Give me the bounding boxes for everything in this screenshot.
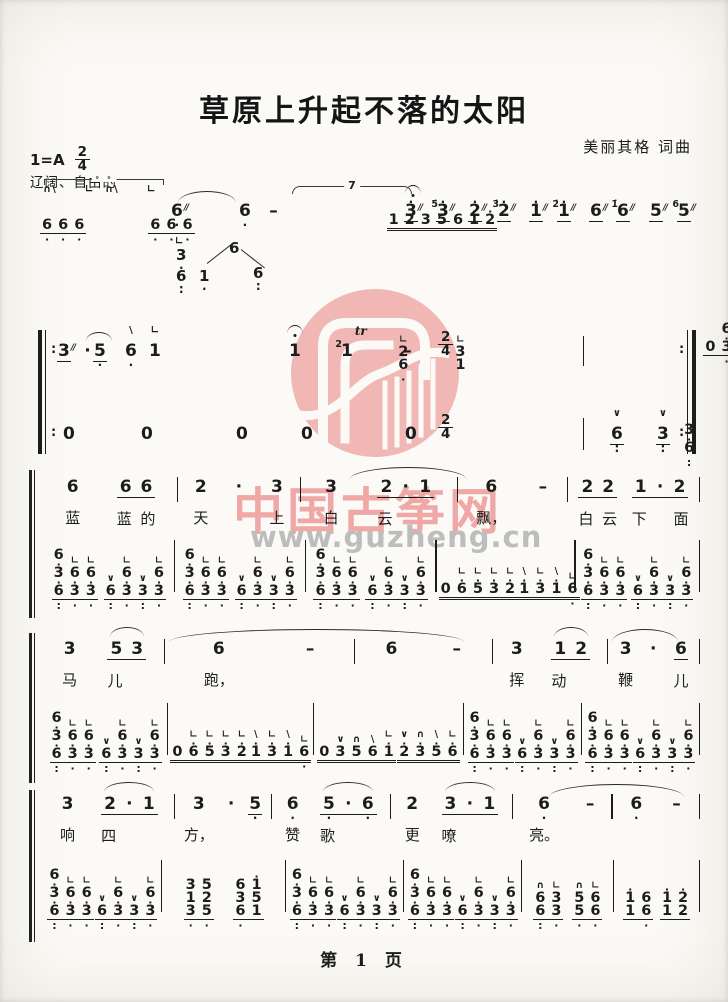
chord-column: 525· [202, 879, 212, 918]
note-token: 6蓝 [65, 477, 80, 528]
repeat-dots: : [51, 427, 56, 439]
beam-group: ·1166· [623, 887, 653, 920]
note-token: 3// [57, 341, 75, 362]
octave-dot-below: · [71, 764, 75, 773]
octave-dot-above: · [534, 199, 539, 205]
chord-column: ∟6·3· [65, 887, 75, 918]
beam-group: 2·1四 [101, 794, 158, 846]
chord-note: 1 [519, 583, 529, 596]
note-token: 5· [322, 794, 336, 814]
octave-dot-below: : [586, 601, 590, 610]
note-value: 6: [610, 424, 624, 445]
note-token: 3· [175, 247, 187, 264]
barline [699, 639, 700, 664]
octave-dot-below: · [593, 921, 597, 930]
beam-group: ∨6:∟6·3·∨3:∟6·3· [337, 887, 399, 920]
lyric-syllable: 面 [673, 508, 688, 529]
octave-dot-below: : [104, 764, 108, 773]
note-token: 2·// [468, 201, 486, 222]
note-token: 6 [674, 639, 688, 660]
octave-dot-below: · [554, 921, 558, 930]
note-value: 2 [194, 477, 208, 497]
note-token: 0 [62, 424, 76, 444]
chord-column: ∨3: [269, 585, 279, 598]
chord-column: ∟6·3· [384, 567, 394, 598]
measure: 6·3·6:∟6·3·∟6·3·∨6:∟6·3·∨3:∟6·3· [464, 712, 581, 763]
chord-column: ∟6·3· [442, 887, 452, 918]
chord-column: ∟6·3· [506, 887, 516, 918]
octave-dot-below: · [153, 235, 157, 244]
vocal-line: 6蓝66蓝的2天·3上3白2·1云6飘，–22白云1·2下面 [44, 477, 700, 529]
lyric-syllable: 儿 [107, 670, 122, 691]
note-value: 3 [619, 639, 633, 659]
lyric-syllable: 蓝 [117, 508, 132, 529]
note-token: – [402, 341, 413, 361]
chord-note: 3 [65, 905, 75, 918]
octave-dot-below: · [120, 764, 124, 773]
note-token: 1·// [529, 201, 547, 222]
measure: 6·3·6:∟6·3·∟6·3·∨6:∟6·3·∨3:∟6·3· [582, 712, 699, 763]
lyric-syllable: 跑， [204, 669, 234, 690]
measure: 6·3·6:∟6·3·∟6·3·∨6:∟6·3·∨3:∟6·3· [306, 549, 436, 600]
ornament: ∟ [552, 881, 560, 891]
note-token: · [226, 794, 237, 814]
measure: 6·3·6:∟6·3·∟6·3·∨6:∟6·3·∨3:∟6·3· [576, 549, 699, 600]
note-token: 3 [324, 477, 338, 497]
chord-column: ∨6: [367, 585, 377, 598]
barline [699, 794, 700, 819]
chord-note: 2 [505, 583, 515, 596]
ornament: ∨ [270, 574, 278, 584]
note-value: · [124, 794, 135, 814]
lyric-syllable: 嘹 [442, 825, 457, 846]
chord-column: ∟6·3· [604, 730, 614, 761]
lyric-syllable: 挥 [509, 669, 524, 690]
beam-group: 6·6·6· [148, 219, 194, 234]
chord-note: 6 [235, 905, 245, 918]
chord-note: 1 [455, 359, 465, 372]
note-token: · [648, 639, 659, 659]
note-token: 3 [444, 794, 458, 814]
note-value: ∟ [146, 184, 157, 195]
chord-column: 6·3·6: [583, 549, 593, 598]
ornament: ∨ [139, 574, 147, 584]
ornament: ∟ [652, 719, 660, 729]
chord-note: 6 [150, 219, 160, 232]
lyric-row: 蓝的 [117, 498, 156, 529]
chord-note: 3 [221, 746, 231, 759]
phrase-arc [612, 629, 678, 642]
ornament: ∩ [575, 881, 583, 891]
chord-column: ∟6·3· [565, 730, 575, 761]
chord-column: ∟·6 [188, 741, 198, 759]
chord-column: ∩5 [351, 746, 361, 759]
note-token: 6· [238, 201, 252, 221]
ornament: ∨ [400, 730, 408, 740]
chord-column: 6·3·6: [52, 712, 62, 761]
beam-group: 6·3·6:∟6·3·∟6·3· [581, 549, 627, 600]
note-token: · [343, 794, 354, 814]
octave-dot-below: · [391, 921, 395, 930]
ornament: ∟ [536, 567, 544, 577]
note-value: ∟ [84, 184, 95, 195]
sheet-page: 中国古筝网 www.guzheng.cn 草原上升起不落的太阳 美丽其格 词曲 … [0, 0, 728, 1002]
chord-note: 3 [649, 585, 659, 598]
tremolo-slashes: // [511, 204, 515, 212]
chord-column: ∟·6 [447, 741, 457, 759]
note-token: 6·亮。 [529, 794, 559, 845]
chord-note: 3 [502, 748, 512, 761]
ornament: ∨ [459, 894, 467, 904]
note-token: 0 [404, 424, 418, 444]
lyric-row: 嘹 [442, 815, 499, 846]
chord-column: 0 [441, 583, 451, 596]
system-bracket [29, 790, 32, 942]
note-value: 2· [468, 201, 482, 222]
chord-column: ·22 [678, 887, 688, 918]
octave-dot-below: · [602, 601, 606, 610]
note-value: 3 [444, 794, 458, 814]
measure: 6·3·6:∟6·3·∟6·3·∨6:∟6·3·∨3:∟6·3· [175, 549, 305, 600]
beam-group: ∨6:∟6·3·∨3:∟6·3· [235, 567, 297, 600]
ornament: ∨ [238, 574, 246, 584]
chord-column: ∨3: [138, 585, 148, 598]
chord-note: 3 [533, 748, 543, 761]
barline [699, 703, 700, 755]
chord-note: 6 [367, 585, 377, 598]
bracket-label: ∘ ∘ [92, 173, 117, 182]
note-value: 0 [235, 424, 249, 444]
chord-note: 5 [473, 583, 483, 596]
tremolo-slashes: // [630, 204, 634, 212]
note-token: 5· [248, 794, 262, 815]
note-value: 6 [119, 477, 133, 497]
tremolo-slashes: // [418, 204, 422, 212]
ornament: ∟ [600, 556, 608, 566]
note-value: 1 [553, 639, 567, 659]
note-token: ∩\ [104, 184, 120, 195]
chord-column: ∟66· [590, 892, 600, 918]
octave-dot-below: · [429, 921, 433, 930]
note-token: 5· [93, 341, 107, 362]
note-token: 6· [238, 201, 252, 221]
octave-dot-below: : [636, 601, 640, 610]
lyric-row: 云 [377, 498, 434, 529]
octave-dot-below: · [618, 601, 622, 610]
note-token: 1·// [529, 201, 547, 222]
octave-dot-below: : [239, 601, 243, 610]
note-token: 1 [482, 794, 496, 814]
note-token: · [233, 477, 244, 497]
note-token: 0 [140, 424, 154, 444]
chord-column: 1 [389, 214, 399, 227]
octave-dot-below: · [445, 921, 449, 930]
note-token: · [226, 794, 237, 814]
octave-dot-below: · [290, 815, 295, 822]
octave-dot-below: : [179, 286, 184, 293]
note-token: 6·// [170, 201, 188, 221]
note-value: – [268, 201, 279, 221]
chord-note: 6 [470, 748, 480, 761]
beam-group: 6·3·6:∟6·3·∟6·3· [408, 869, 454, 920]
note-token: 5 [109, 639, 123, 659]
note-token: 0 [300, 424, 314, 444]
score: 6·6·6·6·6·6·∩\∟∩\∟6·//6·–∟3·6:1·66:12356… [0, 0, 728, 1002]
chord-column: ∨6: [457, 905, 467, 918]
octave-dot-below: · [157, 601, 161, 610]
chord-column: 0 [319, 746, 329, 759]
note-value: 5· [248, 794, 262, 815]
slur-arc [554, 627, 588, 637]
note-value: · [82, 341, 93, 361]
chord-note: 2 [237, 746, 247, 759]
octave-dot-below: : [638, 764, 642, 773]
ornament: ∟ [474, 567, 482, 577]
note-token: · [400, 477, 411, 497]
repeat-dots: : [679, 344, 684, 356]
tremolo-slashes: // [571, 204, 575, 212]
ornament: \ [286, 730, 289, 740]
note-token: 3·// [404, 201, 422, 222]
note-token: 3 [619, 639, 633, 659]
tremolo-slashes: // [543, 204, 547, 212]
chord-note: 6 [188, 746, 198, 759]
beam-group: ∩66:∟33· [533, 892, 563, 920]
note-value: 6 [140, 477, 154, 497]
note-value: 5 [109, 639, 123, 659]
beam-group: ∨6:∟6·3·∨3:∟6·3· [99, 730, 161, 763]
ornament: ∟ [487, 719, 495, 729]
octave-dot-below: · [169, 235, 173, 244]
ornament: ∟ [427, 876, 435, 886]
note-value: 6· [629, 794, 643, 814]
chord-column: ∟6·3· [649, 567, 659, 598]
tremolo-slashes: // [691, 204, 695, 212]
measure: 6蓝66蓝的 [44, 477, 177, 529]
note-token: 3 [130, 639, 144, 659]
chord-note: 6 [635, 748, 645, 761]
chord-column: 313· [186, 879, 196, 918]
chord-note: 6 [74, 219, 84, 232]
chord-note: 6 [453, 214, 463, 227]
chord-note: 1 [283, 746, 293, 759]
beam-notes: 2·1 [101, 794, 158, 815]
note-token: 6·\ [124, 341, 138, 361]
ornament: ∨ [373, 894, 381, 904]
chord-column: 6· [42, 219, 52, 232]
chord-note: 3 [442, 905, 452, 918]
chord-column: ∟6·3· [145, 887, 155, 918]
note-value: · [343, 794, 354, 814]
chord-column: ∟6·3· [84, 730, 94, 761]
note-value: – [671, 794, 682, 814]
note-token: 0 [404, 424, 418, 444]
tremolo-slashes: // [603, 204, 607, 212]
beam-notes: 53 [107, 639, 146, 660]
note-token: 2更 [405, 794, 420, 845]
octave-dot-below: · [724, 357, 728, 366]
octave-dot-below: · [202, 286, 207, 293]
note-token: 6: [175, 268, 187, 285]
chord-note: 3 [604, 748, 614, 761]
ornament: ∨ [634, 574, 642, 584]
note-token: – [268, 201, 279, 221]
chord-note: 3 [84, 748, 94, 761]
note-token: · [655, 477, 666, 497]
chord-column: ∟6·3· [308, 887, 318, 918]
note-token: 2 [103, 794, 117, 814]
ornament: ∟ [202, 556, 210, 566]
note-value: 2 [405, 794, 419, 814]
note-value: 5 [649, 201, 663, 222]
note-token: 3̇2·// [497, 201, 515, 222]
note-token: · [82, 341, 93, 361]
chord-note: 3 [154, 585, 164, 598]
ornament: ∨ [341, 894, 349, 904]
chord-column: \·1 [519, 578, 529, 596]
measure: 3方，·5· [175, 794, 271, 845]
chord-note: 6 [315, 585, 325, 598]
ornament: ∨ [551, 737, 559, 747]
chord-note: 3 [565, 748, 575, 761]
note-token: – [671, 794, 682, 814]
chord-note: 6 [447, 746, 457, 759]
beam-group: 6·3·6:∟6·3·∟6·3· [468, 712, 514, 763]
note-value: 6 [674, 639, 688, 660]
note-value: 6 [589, 201, 603, 222]
lyric-syllable: 赞 [285, 824, 300, 845]
octave-dot-below: · [85, 921, 89, 930]
chord-column: \·1 [283, 741, 293, 759]
ornament: ∟ [268, 730, 276, 740]
note-value: 3 [324, 477, 338, 497]
ornament: ∨ [98, 894, 106, 904]
note-token: 6· [537, 794, 551, 814]
note-value: 6 [385, 639, 399, 659]
chord-note: 0 [441, 583, 451, 596]
note-token: · [233, 477, 244, 497]
slur-arc [110, 627, 144, 637]
note-token: 1 [142, 794, 156, 814]
chord-note: 6 [633, 585, 643, 598]
note-value: 1· [529, 201, 543, 222]
chord-column: ∟6·3· [86, 567, 96, 598]
measure: 0∨3∩5\6∟·1∨·2∩·3\·5∟·6 [314, 741, 463, 763]
chord-column: ∨·2 [399, 741, 409, 759]
chord-column: ∟·3 [221, 741, 231, 759]
note-token: 6// [589, 201, 607, 222]
octave-dot-below: · [505, 764, 509, 773]
chord-note: 3 [267, 746, 277, 759]
octave-dot-below: · [365, 815, 370, 822]
ornament: ∨ [401, 574, 409, 584]
chord-note: 3 [490, 905, 500, 918]
measure: 6·3·6:∟6·3·∟6·3·∨6:∟6·3·∨3:∟6·3· [404, 869, 521, 920]
note-value: · [655, 477, 666, 497]
note-token: 3马 [62, 639, 77, 690]
chord-note: 5 [351, 746, 361, 759]
lyric-syllable: 亮。 [529, 824, 559, 845]
octave-dot-below: · [654, 764, 658, 773]
beam-group: ∨6:∟6·3·∨3:∟6·3· [631, 567, 693, 600]
chord-column: ∟6·3· [332, 567, 342, 598]
chord-note: 3 [506, 905, 516, 918]
note-token: 3鞭 [618, 639, 633, 690]
chord-note: 6 [587, 748, 597, 761]
note-token: 3·// [404, 201, 422, 222]
note-value: 2 [601, 477, 615, 497]
octave-dot-below: · [253, 815, 258, 822]
note-token: – [585, 794, 596, 814]
chord-note: 3 [415, 746, 425, 759]
chord-column: 6·3·6: [315, 549, 325, 598]
note-token: 6·赞 [285, 794, 300, 845]
beam-group: ∨6:∟6·3·∨3:∟6·3· [104, 567, 166, 600]
octave-dot-above: · [409, 199, 414, 205]
octave-dot-below: · [570, 599, 574, 608]
chord-column: ∟6·3· [651, 730, 661, 761]
chord-note: 3 [426, 905, 436, 918]
chord-column: ∟6·3· [356, 887, 366, 918]
chord-column: ·2 [485, 209, 495, 227]
chord-note: 6 [339, 905, 349, 918]
lyric-row: 动 [551, 660, 590, 691]
octave-dot-below: : [493, 921, 497, 930]
note-token: 3:∨ [656, 424, 670, 445]
octave-dot-below: · [327, 815, 332, 822]
octave-dot-below: · [419, 601, 423, 610]
measure: 313·525·636··151 [162, 874, 285, 920]
note-value: 1· [557, 201, 571, 222]
note-token: 6· [629, 794, 643, 814]
beam-group: 6·3·6:∟6·3·∟6·3· [290, 869, 336, 920]
ornament: ∩ [536, 881, 544, 891]
note-value: – [537, 477, 548, 497]
note-token: 1∟ [148, 341, 162, 361]
note-token: 1∟ [148, 341, 162, 361]
ornament: ∟ [417, 556, 425, 566]
barline [45, 330, 46, 454]
lyric-row: 白云 [578, 498, 617, 529]
chord-column: ∟6·3· [474, 887, 484, 918]
chord-note: 6 [42, 219, 52, 232]
chord-column: 6·3·6: [587, 712, 597, 761]
repeat-dots: : [679, 427, 684, 439]
chord-column: ∟·3 [535, 578, 545, 596]
ornament: ∟ [286, 556, 294, 566]
note-token: 6飘， [476, 477, 506, 528]
beam-group: 6·3·6:∟6·3·∟6·3· [313, 549, 359, 600]
octave-dot-below: : [552, 764, 556, 773]
note-token: 6: [175, 268, 187, 285]
octave-dot-below: : [668, 601, 672, 610]
chord-column: ∟31 [455, 346, 465, 372]
chord-column: ∨3: [372, 905, 382, 918]
chord-column: ∟6·3· [154, 567, 164, 598]
chord-note: 3 [722, 341, 728, 354]
note-token: 21tr [340, 341, 354, 361]
note-token: ∩\ [104, 184, 120, 195]
chord-column: ·151 [252, 874, 262, 918]
note-token: 6· [629, 794, 643, 814]
harmonic-bracket: ∘ ∘ [44, 179, 164, 185]
chord-column: ∟6·3· [416, 567, 426, 598]
barline [583, 336, 584, 366]
barline [687, 330, 688, 454]
ornament: \ [129, 326, 133, 336]
lyric-syllable: 白 [324, 507, 339, 528]
ornament: ∟ [621, 719, 629, 729]
